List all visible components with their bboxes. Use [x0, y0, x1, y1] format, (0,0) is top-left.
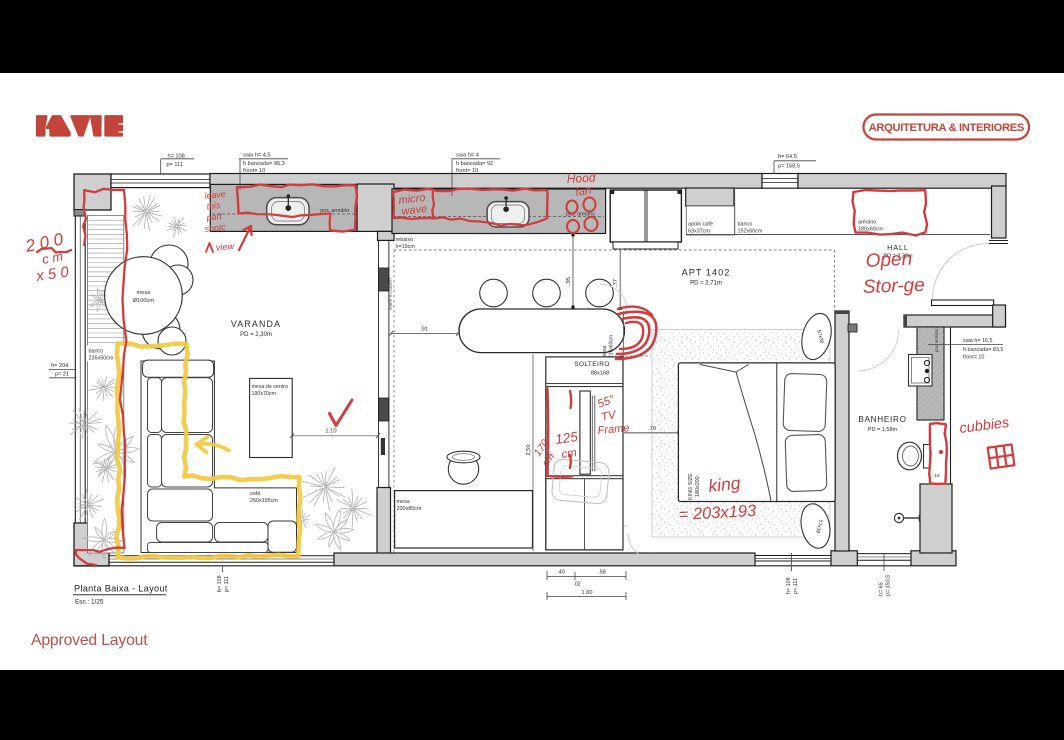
svg-text:mesa: mesa: [397, 499, 410, 505]
svg-text:view: view: [215, 241, 235, 252]
svg-text:h= 108: h= 108: [786, 577, 792, 594]
svg-text:BANHEIRO: BANHEIRO: [858, 415, 906, 424]
svg-text:apoio café: apoio café: [688, 222, 713, 228]
svg-text:h= 64,5: h= 64,5: [778, 154, 797, 160]
svg-text:p= 150,5: p= 150,5: [886, 575, 892, 596]
svg-text:190x70cm: 190x70cm: [252, 391, 277, 397]
svg-text:front= 10: front= 10: [456, 168, 478, 174]
svg-text:VARANDA: VARANDA: [231, 319, 281, 329]
svg-text:63x37cm: 63x37cm: [688, 229, 710, 235]
svg-text:p= 21: p= 21: [55, 372, 69, 378]
svg-text:front= 10: front= 10: [963, 355, 984, 361]
svg-text:front= 10: front= 10: [243, 168, 265, 174]
svg-text:mesa: mesa: [602, 346, 608, 358]
svg-text:armário: armário: [858, 220, 876, 226]
svg-text:h= 204: h= 204: [51, 363, 68, 369]
svg-text:Ø100cm: Ø100cm: [133, 298, 154, 304]
svg-text:h= 65: h= 65: [879, 582, 885, 596]
svg-text:152x60cm: 152x60cm: [738, 229, 763, 235]
svg-text:Hood: Hood: [566, 170, 596, 185]
svg-text:saia h= 16,5: saia h= 16,5: [963, 338, 993, 344]
svg-text:.77: .77: [613, 279, 619, 287]
svg-text:saia h= 4,5: saia h= 4,5: [243, 153, 271, 159]
svg-text:235x50cm: 235x50cm: [89, 356, 114, 362]
svg-text:.58: .58: [598, 570, 606, 576]
svg-text:p= 111: p= 111: [793, 578, 799, 594]
svg-text:APT 1402: APT 1402: [682, 268, 731, 278]
svg-text:part: part: [205, 211, 223, 223]
svg-text:ARQUITETURA & INTERIORES: ARQUITETURA & INTERIORES: [869, 122, 1025, 134]
svg-text:cm: cm: [561, 447, 578, 461]
svg-text:Open: Open: [865, 249, 913, 272]
svg-text:.91: .91: [420, 327, 428, 333]
svg-text:banco: banco: [89, 349, 104, 355]
svg-text:sobre h=190cm: sobre h=190cm: [388, 278, 393, 310]
svg-text:250x195cm: 250x195cm: [250, 498, 278, 504]
svg-text:1.10: 1.10: [325, 429, 336, 435]
svg-text:banco: banco: [738, 222, 753, 228]
svg-text:p= 158,5: p= 158,5: [778, 164, 800, 170]
svg-text:125: 125: [554, 429, 579, 447]
svg-text:SOLTEIRO: SOLTEIRO: [574, 361, 610, 368]
svg-text:PD = 2,71m: PD = 2,71m: [690, 281, 722, 287]
svg-text:.95: .95: [566, 277, 572, 285]
svg-text:saia h= 4: saia h= 4: [456, 153, 479, 159]
svg-text:h bancada= 83,5: h bancada= 83,5: [963, 347, 1003, 353]
svg-text:mesa: mesa: [137, 290, 152, 296]
svg-text:mesa de centro: mesa de centro: [252, 384, 289, 390]
svg-text:sofá: sofá: [250, 491, 260, 497]
svg-text:Approved Layout: Approved Layout: [31, 632, 148, 649]
svg-text:PD = 1,58m: PD = 1,58m: [868, 427, 898, 433]
svg-text:h bancada= 95,3: h bancada= 95,3: [243, 161, 285, 167]
svg-text:h=19cm: h=19cm: [396, 244, 416, 250]
svg-text:p= 111: p= 111: [167, 162, 183, 168]
svg-text:PD = 2,30m: PD = 2,30m: [240, 332, 272, 338]
svg-text:180x200: 180x200: [695, 476, 701, 497]
svg-text:210x60cm: 210x60cm: [609, 335, 615, 358]
svg-text:1.00: 1.00: [582, 590, 593, 596]
svg-text:.15: .15: [933, 473, 940, 479]
svg-text:king: king: [707, 473, 741, 496]
svg-text:p= 111: p= 111: [224, 576, 230, 592]
svg-text:.40: .40: [557, 570, 565, 576]
svg-text:88x168: 88x168: [591, 371, 609, 377]
svg-text:h= 108: h= 108: [217, 575, 223, 592]
svg-text:.70: .70: [648, 426, 656, 432]
svg-text:2,50: 2,50: [526, 444, 532, 455]
svg-text:KING SIZE: KING SIZE: [688, 473, 694, 500]
svg-text:pos. armário: pos. armário: [934, 328, 939, 352]
svg-text:this: this: [206, 200, 221, 211]
svg-text:Planta Baixa - Layout: Planta Baixa - Layout: [74, 584, 168, 594]
svg-text:Stor-ge: Stor-ge: [862, 275, 925, 298]
svg-text:.02: .02: [573, 582, 580, 588]
svg-text:Esc.: 1/25: Esc.: 1/25: [75, 599, 104, 606]
svg-text:rebaixo: rebaixo: [396, 237, 414, 243]
svg-text:h bancada= 92: h bancada= 92: [456, 161, 493, 167]
svg-text:fan: fan: [575, 185, 593, 199]
svg-text:200x80cm: 200x80cm: [397, 506, 422, 512]
